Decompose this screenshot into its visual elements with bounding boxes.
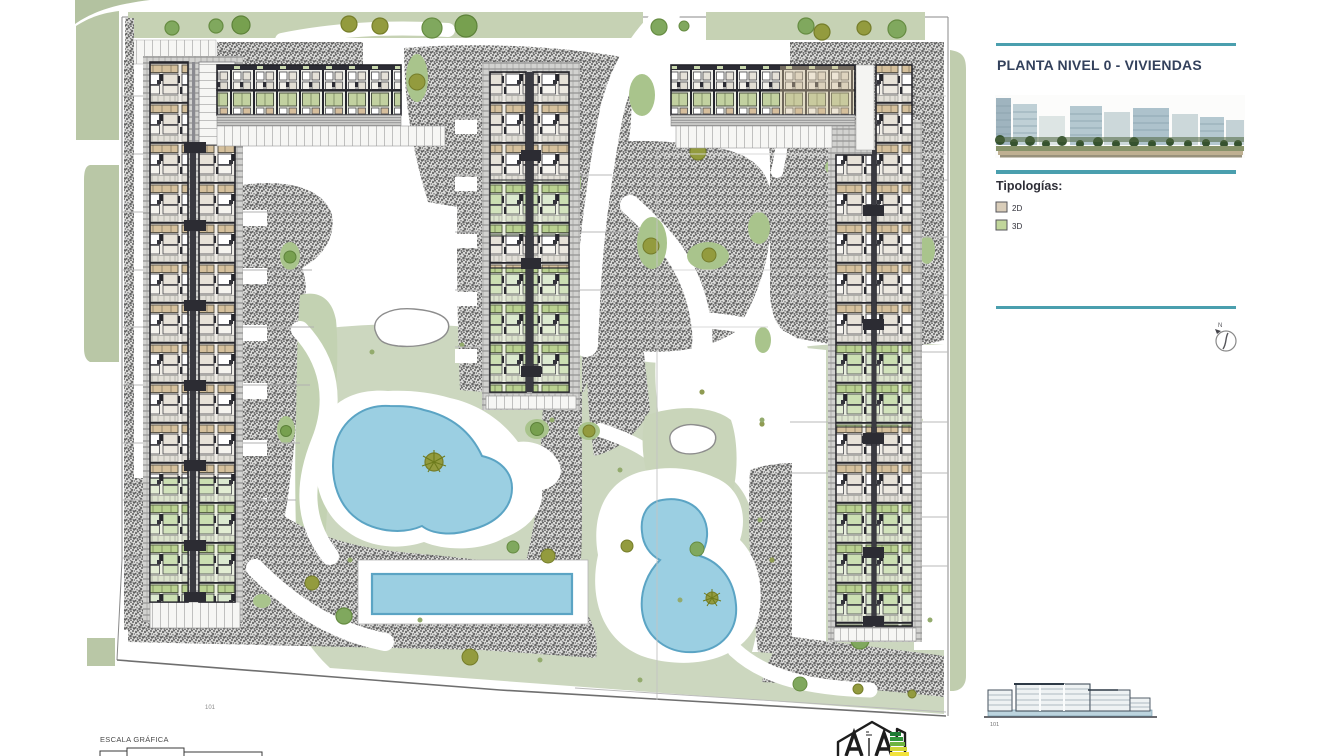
svg-text:PLANTA NIVEL 0 - VIVIENDAS: PLANTA NIVEL 0 - VIVIENDAS: [997, 57, 1202, 73]
svg-text:2D: 2D: [1012, 204, 1022, 213]
svg-text:N: N: [1218, 323, 1222, 329]
svg-text:3D: 3D: [1012, 222, 1022, 231]
svg-text:101: 101: [205, 705, 216, 711]
svg-text:101: 101: [990, 722, 999, 728]
svg-text:ESCALA GRÁFICA: ESCALA GRÁFICA: [100, 735, 169, 744]
svg-text:Tipologías:: Tipologías:: [996, 179, 1062, 193]
